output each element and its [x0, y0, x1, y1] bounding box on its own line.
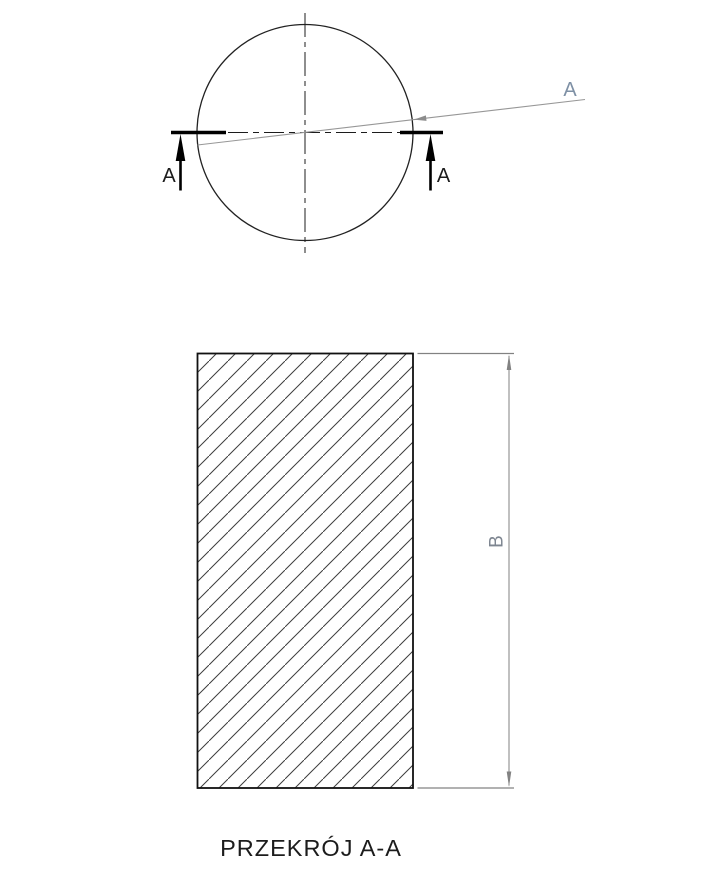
dimension-b-label: B: [487, 535, 508, 548]
view-leader-label: A: [563, 79, 577, 101]
section-mark-label-left: A: [162, 165, 176, 187]
section-arrow-right-icon: [426, 134, 436, 191]
view-leader-arrowhead-icon: [414, 115, 427, 121]
dimension-b: B: [418, 354, 515, 789]
view-leader: A: [198, 79, 586, 145]
dimension-arrowhead-bottom-icon: [507, 772, 512, 788]
technical-drawing-canvas: A A A B PRZEKRÓJ A-A: [0, 0, 706, 873]
view-leader-line: [198, 100, 586, 146]
section-view: B PRZEKRÓJ A-A: [198, 354, 515, 862]
dimension-arrowhead-top-icon: [507, 355, 512, 371]
section-hatched-body: [198, 354, 414, 789]
section-arrow-left-head: [176, 134, 186, 161]
top-view: A A A: [162, 13, 585, 253]
section-arrow-left-icon: [176, 134, 186, 191]
drawing-sheet: A A A B PRZEKRÓJ A-A: [0, 0, 706, 873]
section-view-title: PRZEKRÓJ A-A: [220, 835, 402, 861]
section-mark-label-right: A: [437, 165, 451, 187]
section-arrow-right-head: [426, 134, 436, 161]
